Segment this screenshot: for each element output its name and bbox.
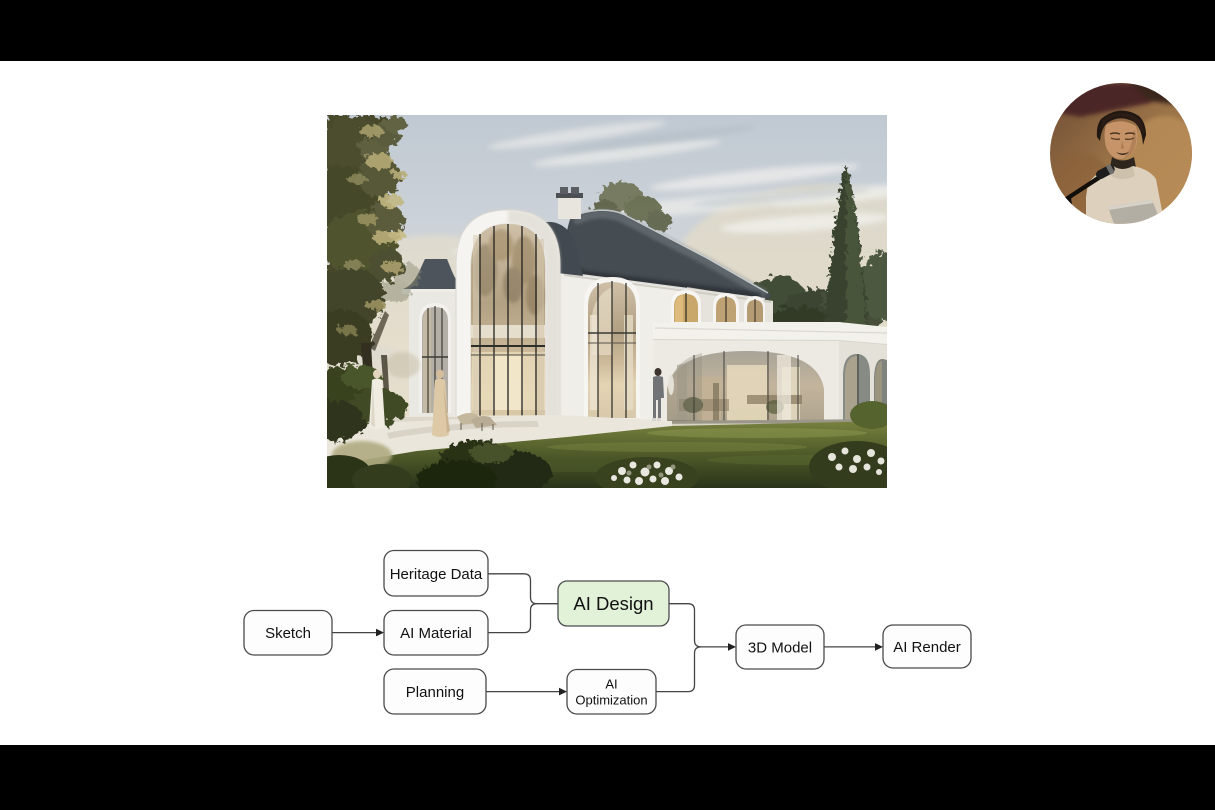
svg-text:3D Model: 3D Model (748, 640, 812, 657)
svg-text:AI Render: AI Render (893, 639, 961, 656)
svg-text:AI: AI (605, 677, 617, 692)
svg-text:Planning: Planning (406, 684, 464, 701)
svg-text:AI Design: AI Design (573, 593, 653, 614)
svg-text:Optimization: Optimization (575, 693, 647, 708)
svg-text:Heritage Data: Heritage Data (390, 566, 483, 583)
svg-text:AI Material: AI Material (400, 625, 472, 642)
svg-text:Sketch: Sketch (265, 625, 311, 642)
